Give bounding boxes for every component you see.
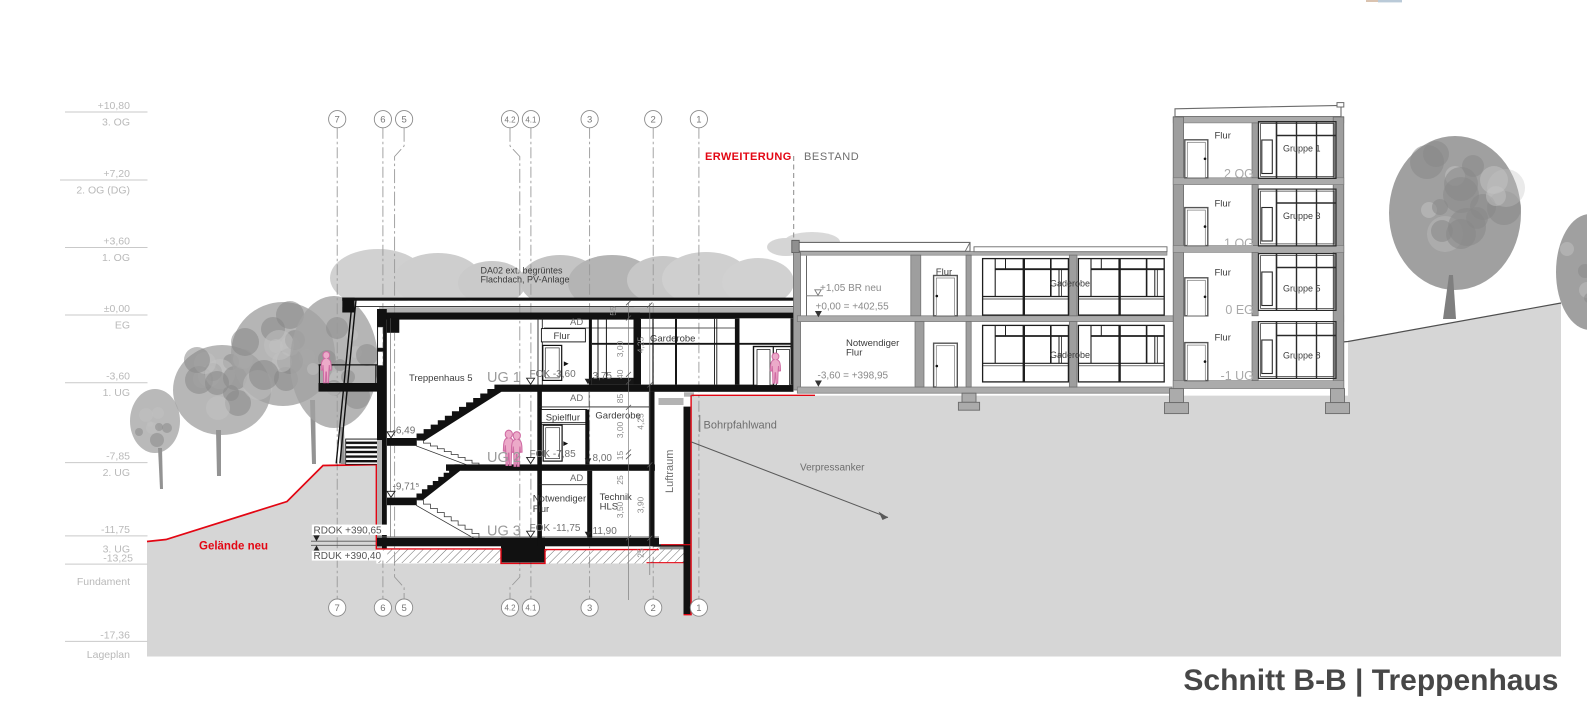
svg-text:25: 25 <box>636 548 646 558</box>
svg-text:Gelände neu: Gelände neu <box>199 541 268 553</box>
svg-text:4.2: 4.2 <box>504 116 516 125</box>
svg-text:Flur: Flur <box>554 331 570 342</box>
svg-text:+10,80: +10,80 <box>98 100 131 112</box>
svg-text:Gruppe 8: Gruppe 8 <box>1283 350 1321 360</box>
svg-text:Verpressanker: Verpressanker <box>800 463 865 474</box>
svg-text:5: 5 <box>401 603 406 614</box>
svg-text:Flur: Flur <box>1215 333 1231 344</box>
svg-text:Bohrpfahlwand: Bohrpfahlwand <box>704 420 777 432</box>
svg-text:3: 3 <box>587 115 592 126</box>
svg-text:1. UG: 1. UG <box>103 387 130 399</box>
svg-text:RDOK +390,65: RDOK +390,65 <box>314 525 383 536</box>
svg-text:0 EG: 0 EG <box>1225 303 1254 317</box>
svg-text:6: 6 <box>380 603 385 614</box>
svg-text:UG 2: UG 2 <box>487 450 521 466</box>
svg-text:Garderobe: Garderobe <box>595 410 640 421</box>
svg-text:FOK -3,60: FOK -3,60 <box>530 369 577 380</box>
svg-text:BESTAND: BESTAND <box>804 151 859 163</box>
svg-text:4,25: 4,25 <box>636 413 646 430</box>
svg-text:1. OG: 1. OG <box>102 252 130 264</box>
svg-text:2. UG: 2. UG <box>103 467 130 479</box>
svg-text:3. OG: 3. OG <box>102 117 130 129</box>
svg-text:FOK -11,75: FOK -11,75 <box>530 523 581 534</box>
svg-text:Gaderobe: Gaderobe <box>1050 278 1090 288</box>
svg-text:+3,60: +3,60 <box>103 236 130 248</box>
svg-text:-17,36: -17,36 <box>100 629 130 641</box>
svg-text:Garderobe: Garderobe <box>650 334 695 345</box>
svg-text:7: 7 <box>335 115 340 126</box>
svg-text:Schnitt B-B | Treppenhaus: Schnitt B-B | Treppenhaus <box>1183 664 1558 697</box>
svg-text:AD: AD <box>570 473 583 484</box>
svg-text:1 OG: 1 OG <box>1224 236 1254 250</box>
svg-text:AD: AD <box>570 393 583 404</box>
svg-text:Spielflur: Spielflur <box>546 412 580 423</box>
svg-text:-3,60 = +398,95: -3,60 = +398,95 <box>818 371 889 382</box>
svg-text:4.1: 4.1 <box>525 116 537 125</box>
svg-text:AD: AD <box>570 317 583 328</box>
svg-text:Gruppe 3: Gruppe 3 <box>1283 211 1321 221</box>
svg-text:±0,00: ±0,00 <box>104 303 130 315</box>
svg-text:85: 85 <box>615 394 625 404</box>
svg-text:40: 40 <box>615 369 625 379</box>
svg-text:Flachdach, PV-Anlage: Flachdach, PV-Anlage <box>481 275 570 285</box>
svg-text:-6,49: -6,49 <box>393 426 416 437</box>
svg-text:3,50: 3,50 <box>615 501 625 518</box>
svg-text:Lageplan: Lageplan <box>87 649 130 661</box>
svg-text:Flur: Flur <box>846 348 862 359</box>
svg-text:-13,25: -13,25 <box>103 553 133 565</box>
svg-text:55: 55 <box>608 306 618 316</box>
svg-text:1: 1 <box>696 115 701 126</box>
svg-text:Flur: Flur <box>1215 198 1231 209</box>
svg-text:3,75: 3,75 <box>593 371 613 382</box>
svg-text:-11,75: -11,75 <box>101 524 130 536</box>
svg-text:+1,05 BR neu: +1,05 BR neu <box>820 283 881 294</box>
svg-text:UG 1: UG 1 <box>487 370 521 386</box>
svg-text:1: 1 <box>696 603 701 614</box>
svg-text:Notwendiger: Notwendiger <box>533 493 586 504</box>
svg-text:25: 25 <box>615 475 625 485</box>
svg-text:UG 3: UG 3 <box>487 524 521 540</box>
svg-text:8,00: 8,00 <box>593 453 613 464</box>
svg-text:FOK -7,85: FOK -7,85 <box>530 449 577 460</box>
svg-text:Gruppe 5: Gruppe 5 <box>1283 284 1321 294</box>
svg-text:4.1: 4.1 <box>525 604 537 613</box>
svg-text:2: 2 <box>651 603 656 614</box>
svg-text:-9,71⁵: -9,71⁵ <box>393 482 420 493</box>
svg-text:+7,20: +7,20 <box>103 168 130 180</box>
svg-text:Gaderobe: Gaderobe <box>1050 350 1090 360</box>
svg-text:EG: EG <box>115 320 130 332</box>
svg-text:3: 3 <box>587 603 592 614</box>
svg-text:3,00: 3,00 <box>615 421 625 438</box>
svg-text:4,25: 4,25 <box>636 336 646 353</box>
svg-text:11,90: 11,90 <box>593 526 618 537</box>
svg-text:2. OG (DG): 2. OG (DG) <box>76 185 130 197</box>
svg-text:7: 7 <box>335 603 340 614</box>
svg-text:-1 UG: -1 UG <box>1221 369 1254 383</box>
svg-text:ERWEITERUNG: ERWEITERUNG <box>705 151 792 163</box>
svg-text:Flur: Flur <box>533 504 549 515</box>
svg-text:-7,85: -7,85 <box>106 451 130 463</box>
svg-text:+0,00 = +402,55: +0,00 = +402,55 <box>816 302 890 313</box>
svg-text:3,00: 3,00 <box>615 340 625 357</box>
svg-text:-3,60: -3,60 <box>106 371 130 383</box>
svg-text:Flur: Flur <box>1215 268 1231 279</box>
svg-text:4.2: 4.2 <box>504 604 516 613</box>
svg-text:Gruppe 1: Gruppe 1 <box>1283 144 1321 154</box>
svg-text:RDUK +390,40: RDUK +390,40 <box>314 551 382 562</box>
svg-text:Fundament: Fundament <box>77 576 130 588</box>
svg-text:Luftraum: Luftraum <box>664 450 676 493</box>
svg-text:6: 6 <box>380 115 385 126</box>
svg-text:3,90: 3,90 <box>636 496 646 513</box>
svg-text:Treppenhaus 5: Treppenhaus 5 <box>409 373 473 384</box>
svg-text:2: 2 <box>651 115 656 126</box>
svg-text:15: 15 <box>615 451 625 461</box>
svg-text:5: 5 <box>401 115 406 126</box>
svg-text:Flur: Flur <box>1215 131 1231 142</box>
svg-text:2 OG: 2 OG <box>1224 167 1254 181</box>
